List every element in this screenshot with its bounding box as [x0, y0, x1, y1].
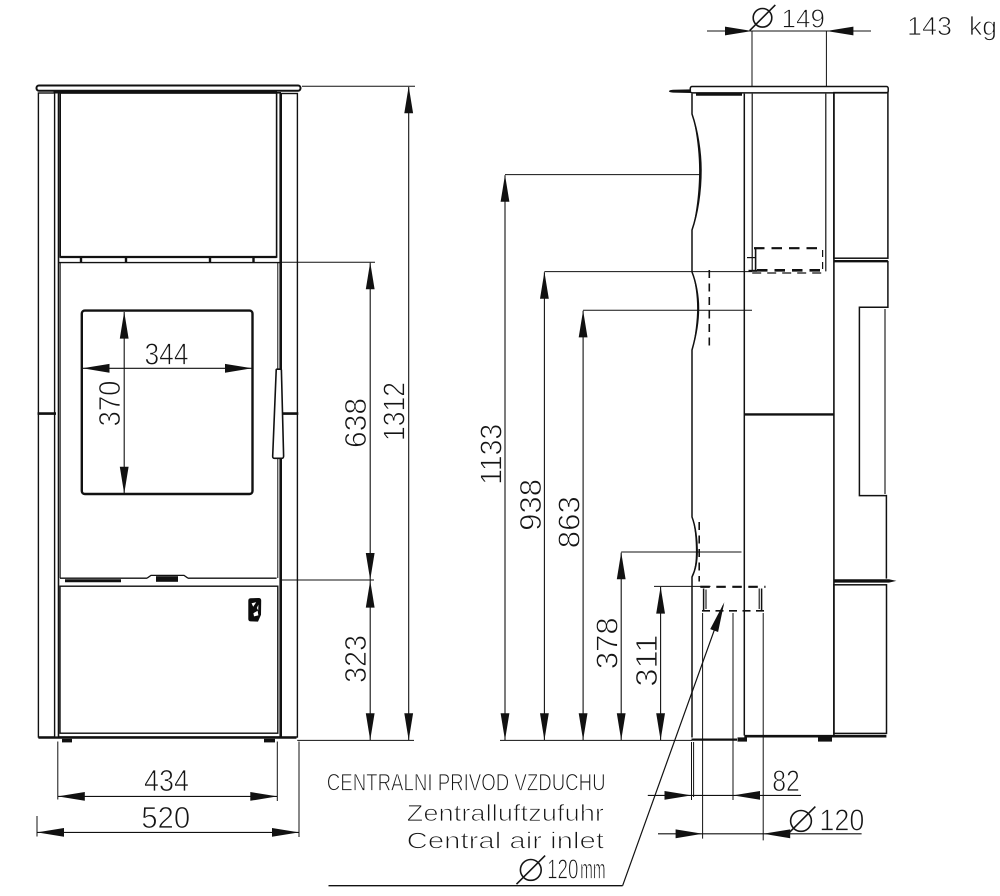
svg-text:143: 143: [907, 11, 952, 41]
svg-text:149: 149: [782, 4, 826, 34]
svg-text:863: 863: [551, 496, 586, 548]
svg-text:CENTRALNI PRIVOD VZDUCHU: CENTRALNI PRIVOD VZDUCHU: [327, 770, 606, 797]
svg-text:Zentralluftzufuhr: Zentralluftzufuhr: [407, 800, 605, 826]
svg-text:323: 323: [338, 635, 373, 683]
svg-text:kg: kg: [969, 11, 997, 41]
svg-text:370: 370: [92, 381, 127, 427]
svg-text:520: 520: [141, 800, 190, 835]
svg-text:638: 638: [338, 398, 373, 448]
svg-text:311: 311: [629, 635, 664, 687]
svg-text:120: 120: [547, 853, 578, 884]
svg-text:mm: mm: [580, 853, 606, 884]
svg-text:1312: 1312: [377, 382, 412, 441]
svg-text:434: 434: [144, 763, 189, 798]
svg-text:Central air inlet: Central air inlet: [407, 827, 605, 853]
svg-text:344: 344: [145, 337, 189, 372]
svg-text:378: 378: [590, 617, 625, 669]
svg-text:938: 938: [513, 479, 548, 531]
svg-text:82: 82: [772, 765, 800, 798]
svg-text:120: 120: [819, 802, 864, 837]
svg-text:1133: 1133: [473, 424, 508, 485]
